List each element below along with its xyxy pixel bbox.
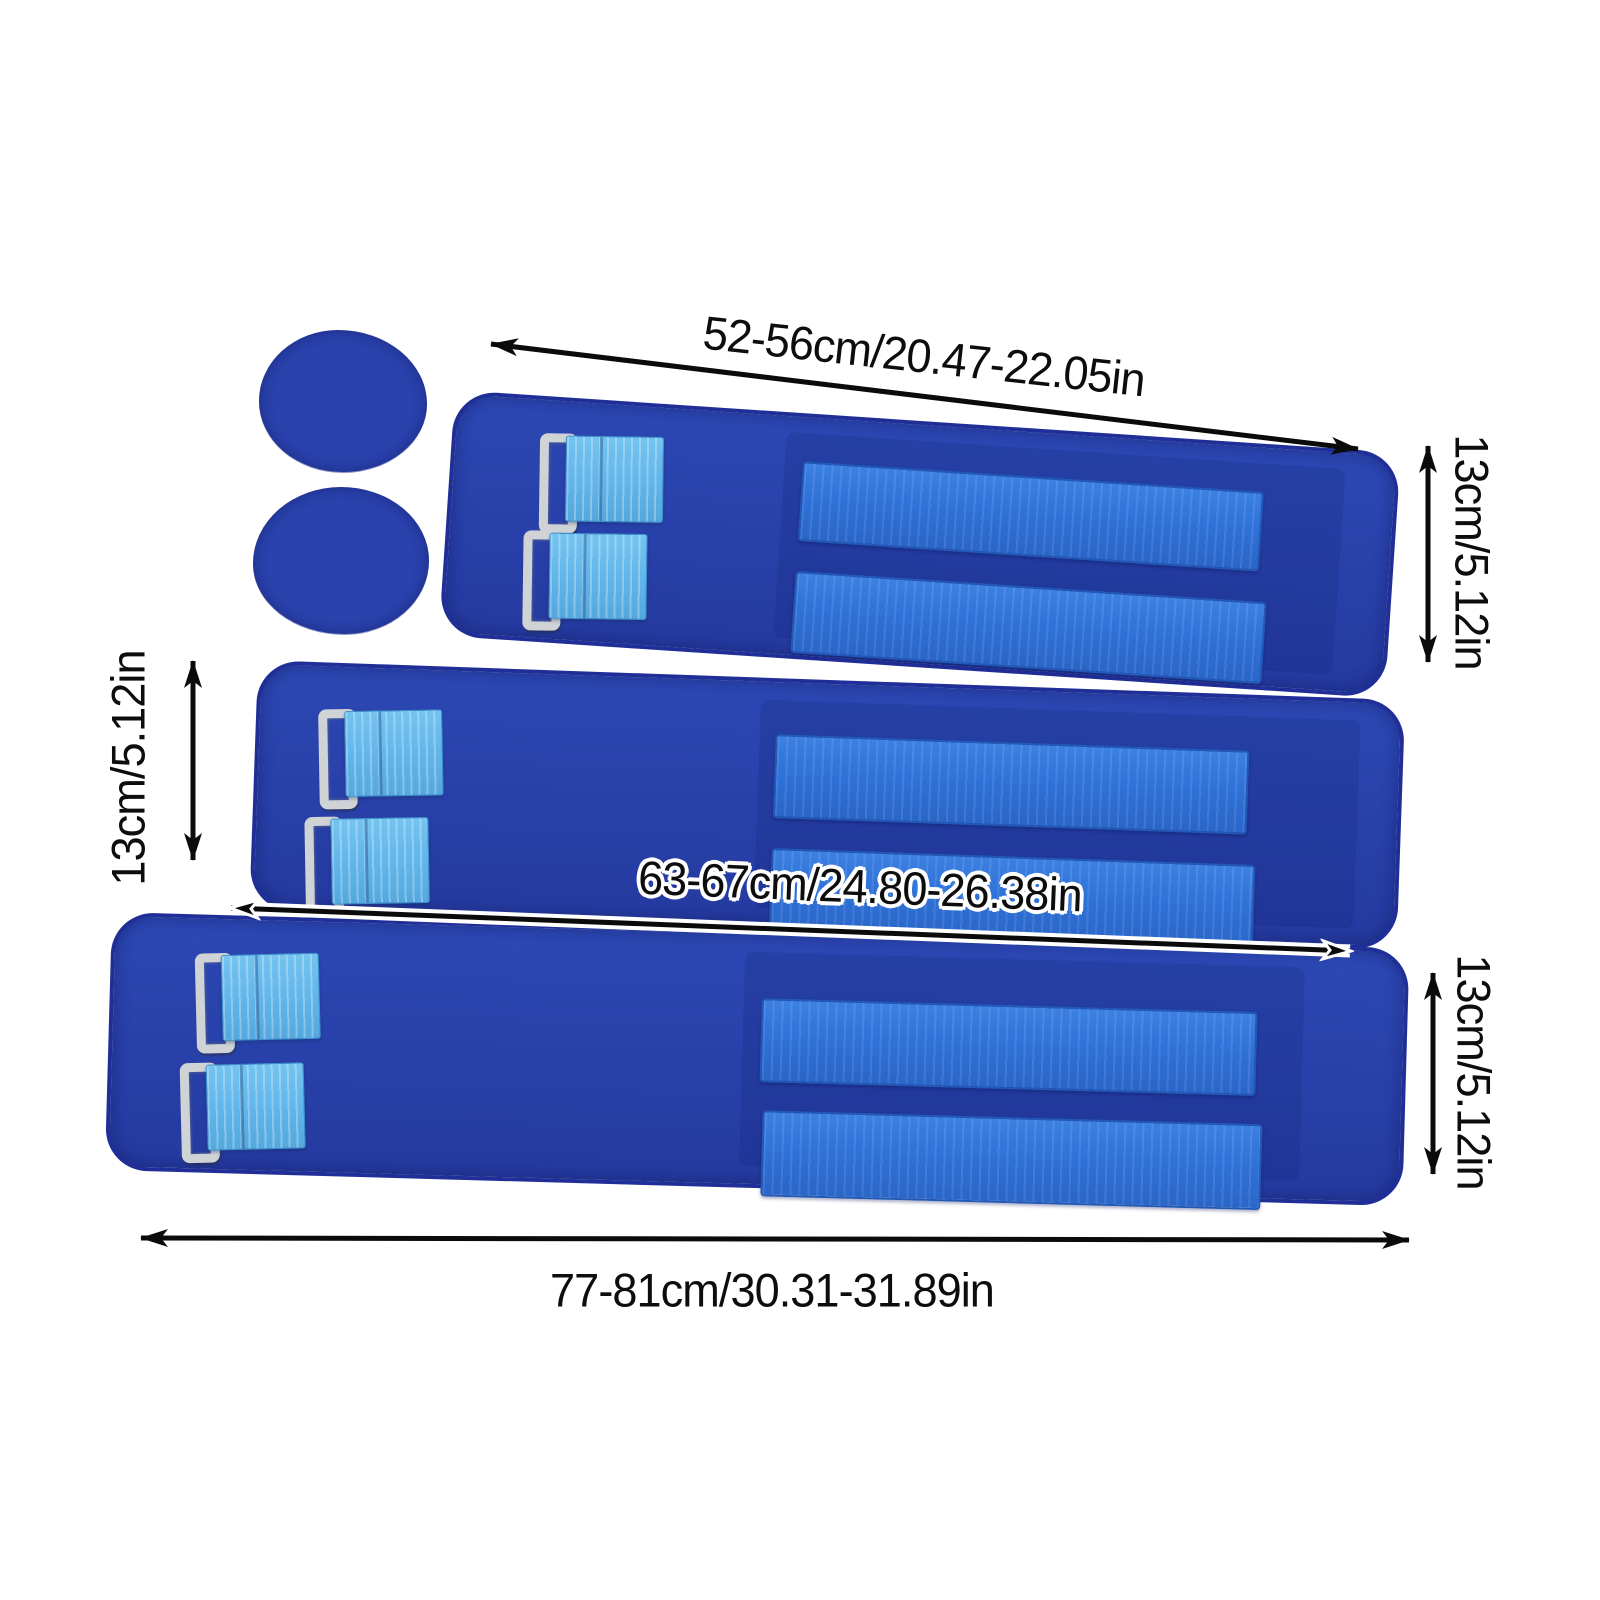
dimension-label-left-width: 13cm/5.12in [105,650,152,885]
dimension-arrows [0,0,1600,1600]
dimension-label-bottom-length: 77-81cm/30.31-31.89in [550,1267,994,1314]
dimension-arrow-bottom-length [141,1238,1409,1240]
size-diagram: 52-56cm/20.47-22.05in 13cm/5.12in 13cm/5… [0,0,1600,1600]
dimension-label-bottom-width: 13cm/5.12in [1451,954,1498,1189]
dimension-arrow-middle-length [231,908,1350,951]
dimension-label-top-width: 13cm/5.12in [1449,434,1496,669]
